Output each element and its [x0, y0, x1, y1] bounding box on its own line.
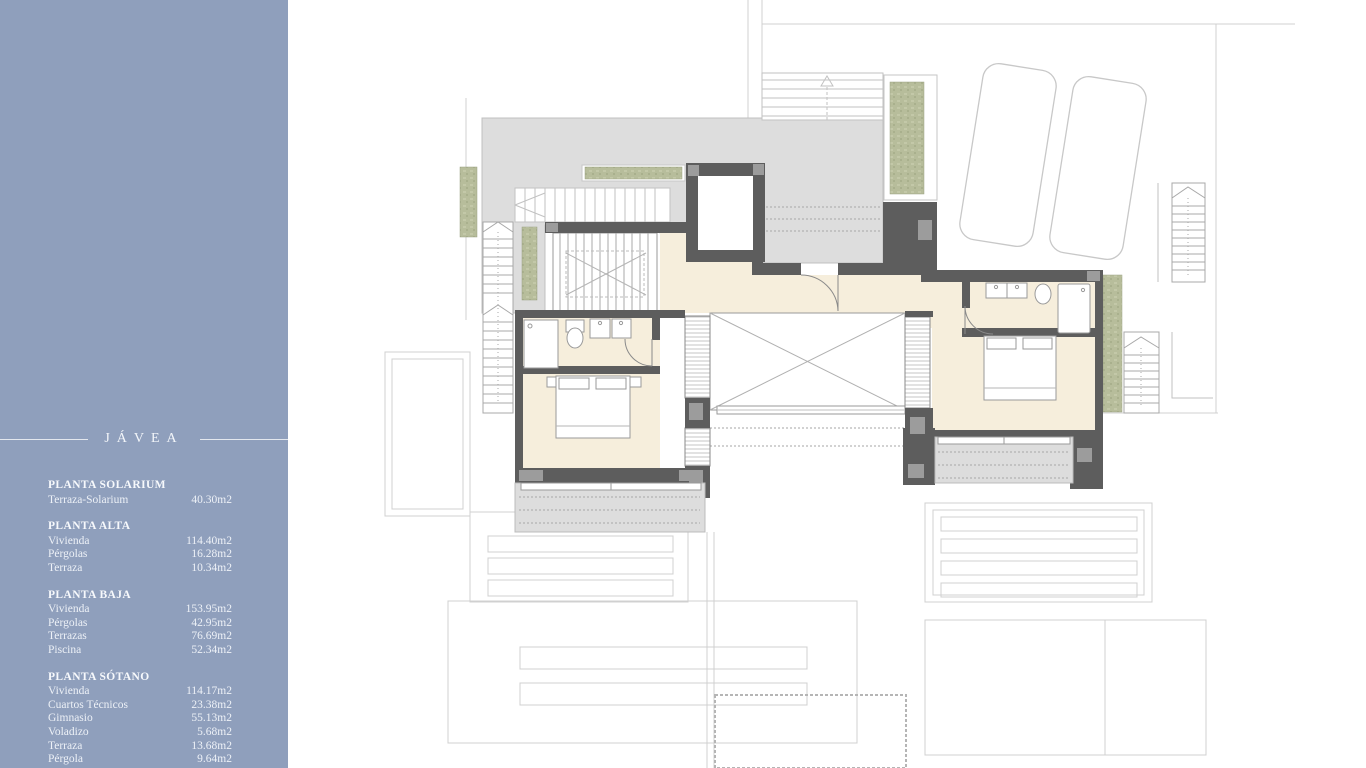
planter-green	[585, 167, 682, 179]
planter-green	[890, 82, 924, 194]
planter-green	[1103, 275, 1122, 412]
pergola-slat	[941, 517, 1137, 531]
pillow	[559, 378, 589, 389]
exterior-stair-right-lower	[1124, 332, 1213, 413]
window-glazing	[685, 428, 710, 466]
pergola-slat	[941, 539, 1137, 553]
exterior-stair-right-upper	[1158, 183, 1205, 282]
planter-green	[522, 227, 537, 300]
toilet-icon	[1035, 284, 1051, 304]
pool-outline	[715, 695, 906, 768]
pergola-slat	[941, 561, 1137, 575]
pillow	[596, 378, 626, 389]
car-outline	[958, 61, 1059, 248]
bathtub-icon	[1058, 284, 1090, 333]
pergola-slat	[520, 683, 807, 705]
window-glazing	[685, 316, 710, 398]
pergola-slat	[488, 580, 673, 596]
pillow	[987, 338, 1016, 349]
pergola-slat	[488, 558, 673, 574]
pillow	[1023, 338, 1052, 349]
central-void	[710, 313, 905, 446]
pergola-slat	[488, 536, 673, 552]
floor-plan	[0, 0, 1366, 768]
solarium-stair-faint	[515, 188, 670, 222]
entry-steps	[762, 73, 883, 120]
parking	[958, 61, 1149, 261]
pergola-slat	[520, 647, 807, 669]
window-glazing	[905, 317, 930, 408]
vestibule-interior	[698, 176, 753, 250]
hallway	[752, 275, 921, 313]
car-outline	[1048, 74, 1149, 261]
interior-staircase	[553, 233, 657, 313]
nightstand	[630, 377, 641, 387]
page: JÁVEA PLANTA SOLARIUM Terraza-Solarium 4…	[0, 0, 1366, 768]
planter-green	[460, 167, 477, 237]
exterior-stair-left	[483, 222, 513, 413]
